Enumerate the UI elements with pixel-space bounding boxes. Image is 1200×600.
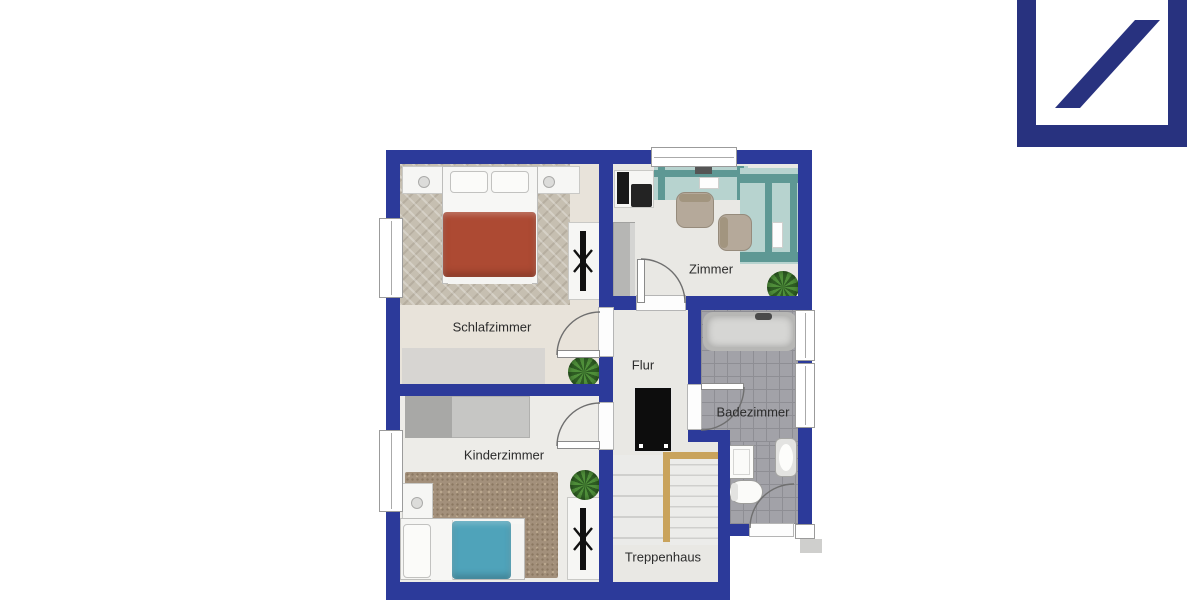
- doorway-schlafzimmer: [598, 307, 614, 357]
- washbasin-bowl: [779, 444, 793, 471]
- door-leaf-schlafzimmer: [557, 350, 600, 358]
- room-label-schlafzimmer: Schlafzimmer: [453, 320, 532, 335]
- wall-center-vertical: [599, 164, 613, 582]
- logo-frame-right: [1168, 0, 1187, 147]
- door-leaf-badezimmer: [701, 383, 744, 390]
- bathtub-basin: [707, 316, 793, 347]
- schlafzimmer-rug: [402, 348, 545, 384]
- door-leaf-kinderzimmer: [557, 441, 600, 449]
- room-label-kinderzimmer: Kinderzimmer: [464, 448, 544, 463]
- door-leaf-zimmer: [637, 259, 645, 303]
- office-chair-1: [676, 192, 714, 228]
- window-kinderzimmer: [379, 430, 403, 512]
- washbasin: [775, 438, 797, 477]
- bath-vanity-inner: [733, 449, 750, 475]
- zimmer-cabinet-edge: [630, 223, 635, 301]
- window-bad-lower: [795, 363, 815, 428]
- kinder-bed-foot-strip: [511, 524, 524, 578]
- desk-monitor: [695, 166, 712, 174]
- logo-frame-bottom: [1017, 125, 1187, 147]
- doorway-badezimmer: [687, 384, 702, 430]
- wall-top: [386, 150, 812, 164]
- wall-bad-bottom-stub: [730, 524, 750, 536]
- glass-desk-top-leg-left: [658, 166, 665, 200]
- window-bad-upper: [795, 310, 815, 361]
- toilet-tank: [731, 483, 738, 501]
- office-chair-2: [718, 214, 752, 251]
- logo-frame-left: [1017, 0, 1036, 147]
- room-label-badezimmer: Badezimmer: [717, 405, 790, 420]
- glass-desk-right-bar-bottom: [740, 252, 798, 262]
- deutsche-bank-logo: [1017, 0, 1187, 147]
- kinder-bed-pillow: [403, 524, 431, 578]
- exterior-step: [800, 539, 822, 553]
- flur-cabinet-foot-left: [639, 444, 643, 448]
- stairs-left-flight: [613, 455, 663, 545]
- glass-desk-right-bar-edge: [790, 174, 797, 260]
- pc-tower: [617, 172, 629, 204]
- toilet: [729, 480, 763, 504]
- desk-paper-right: [772, 222, 783, 248]
- kinder-nightstand-knob: [411, 497, 423, 509]
- tv-schlafzimmer: [580, 231, 586, 291]
- stair-handrail-vertical: [663, 455, 670, 542]
- nightstand-knob-left: [418, 176, 430, 188]
- room-label-zimmer: Zimmer: [689, 262, 733, 277]
- wall-treppenhaus-bad: [718, 442, 730, 582]
- bed-pillow-right: [491, 171, 529, 193]
- bed-pillow-left: [450, 171, 488, 193]
- tv-kinderzimmer: [580, 508, 586, 570]
- window-schlafzimmer: [379, 218, 403, 298]
- flur-cabinet-foot-right: [664, 444, 668, 448]
- kinder-wardrobe-left: [405, 396, 452, 438]
- floor-plan-page: Schlafzimmer Zimmer Flur Badezimmer Kind…: [0, 0, 1200, 600]
- room-label-flur: Flur: [632, 358, 654, 373]
- bathtub-faucet: [755, 313, 772, 320]
- logo-slash: [1055, 20, 1160, 108]
- stairs-right-flight: [670, 455, 718, 545]
- wall-schlaf-kinder: [400, 384, 599, 396]
- kinder-bed-sheet: [431, 520, 453, 580]
- room-label-treppenhaus: Treppenhaus: [625, 550, 701, 565]
- bath-vanity: [729, 445, 754, 479]
- nightstand-knob-right: [543, 176, 555, 188]
- stair-handrail-top: [663, 452, 718, 459]
- kinder-bed-duvet-teal: [452, 521, 511, 579]
- bed-duvet-red: [443, 212, 536, 277]
- chair-1-backrest: [679, 194, 711, 202]
- wall-bottom: [386, 582, 730, 600]
- bed-foot-strip: [448, 277, 532, 284]
- glass-desk-right-bar-mid: [765, 174, 772, 260]
- doorway-bad-exterior: [749, 523, 794, 537]
- bathtub: [703, 312, 797, 351]
- window-zimmer: [651, 147, 737, 167]
- doorway-kinderzimmer: [598, 402, 614, 450]
- wall-end-cap: [795, 524, 815, 539]
- desk-paper: [699, 177, 719, 189]
- wall-connector: [688, 430, 730, 442]
- flur-cabinet: [634, 387, 672, 452]
- chair-2-backrest: [720, 217, 728, 248]
- printer: [631, 184, 652, 207]
- plant-kinderzimmer: [570, 470, 600, 500]
